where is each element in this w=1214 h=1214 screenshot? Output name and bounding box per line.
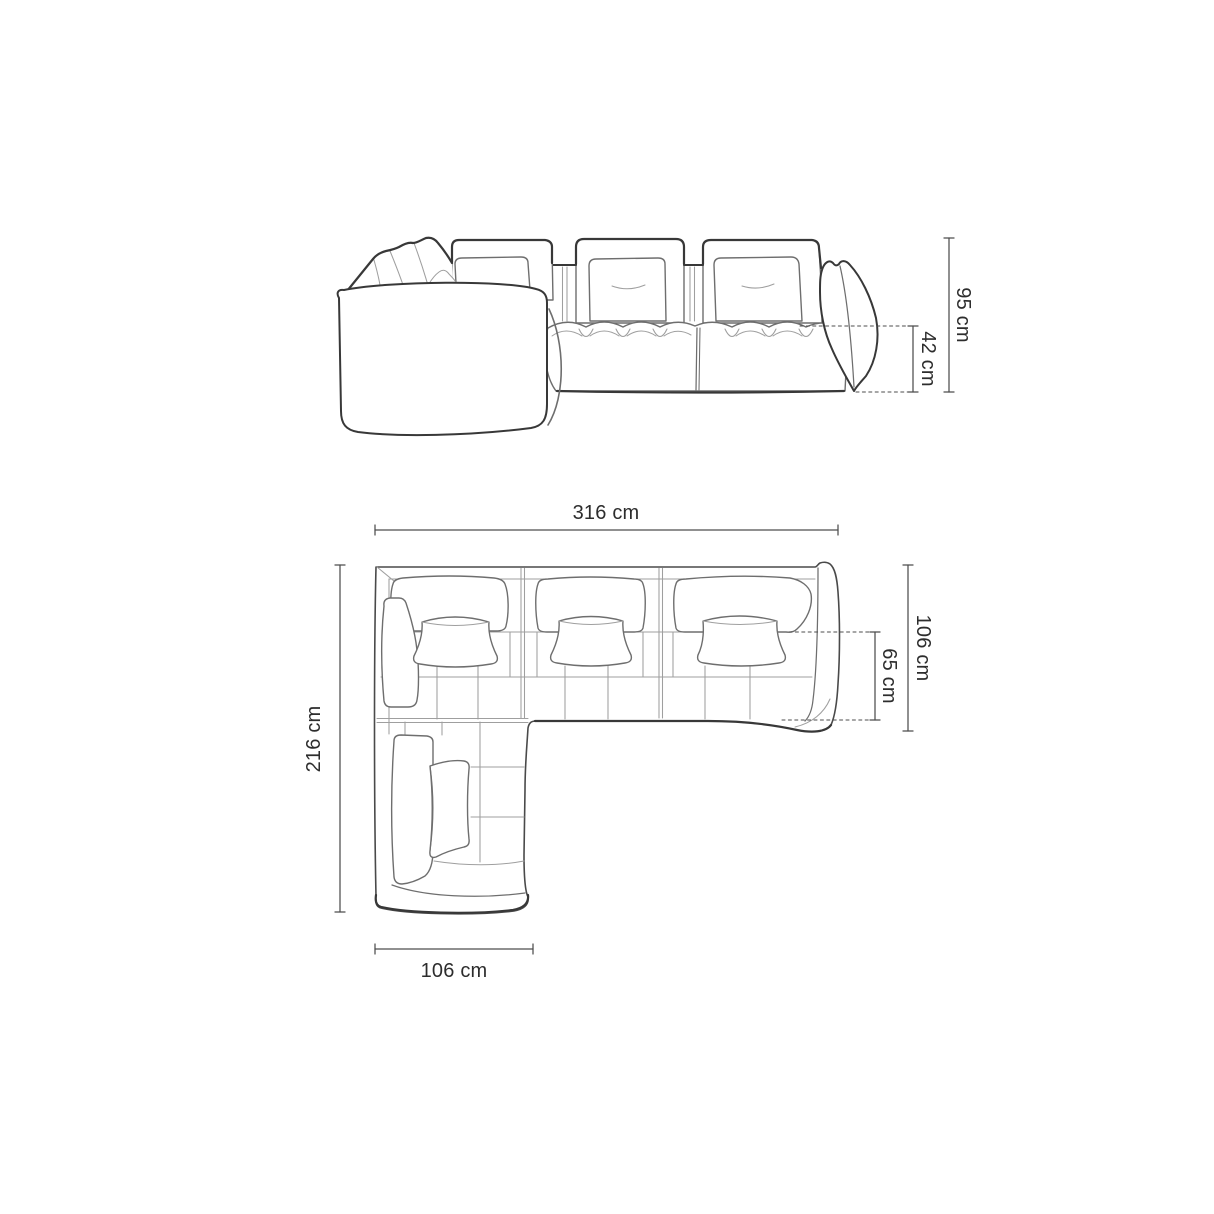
dimension-chaise-width: 106 cm <box>375 944 533 982</box>
dimension-overall-depth: 216 cm <box>303 565 345 912</box>
seat-height-label: 42 cm <box>917 331 939 386</box>
overall-height-label: 95 cm <box>952 287 974 342</box>
front-corner-panel <box>338 283 562 435</box>
plan-seat-pillows <box>414 616 786 667</box>
dimension-diagram-page: 42 cm 95 cm <box>0 0 1214 1214</box>
front-view-drawing: 42 cm 95 cm <box>338 238 974 435</box>
dimension-seat-depth: 65 cm <box>870 632 900 720</box>
dimension-seat-height: 42 cm <box>908 326 939 392</box>
dimension-overall-height: 95 cm <box>944 238 974 392</box>
sofa-dimension-diagram: 42 cm 95 cm <box>0 0 1214 1214</box>
chaise-width-label: 106 cm <box>421 960 488 982</box>
front-seat-cushions <box>545 322 847 393</box>
side-depth-label: 106 cm <box>912 615 934 682</box>
top-view-drawing: 316 cm 216 cm 65 cm 106 cm <box>303 502 934 982</box>
front-module2-pillow <box>589 258 666 321</box>
dimension-side-depth: 106 cm <box>903 565 934 731</box>
seat-depth-label: 65 cm <box>878 648 900 703</box>
front-module3-pillow <box>714 257 802 321</box>
dimension-overall-width: 316 cm <box>375 502 838 535</box>
overall-depth-label: 216 cm <box>303 706 325 773</box>
overall-width-label: 316 cm <box>573 502 640 524</box>
